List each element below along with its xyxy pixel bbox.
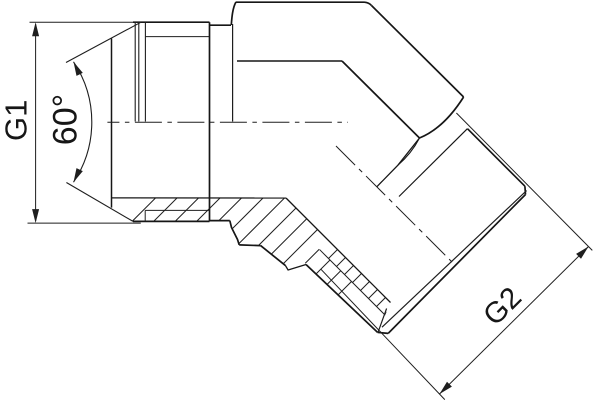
svg-text:60°: 60° (47, 94, 85, 145)
svg-text:G1: G1 (0, 100, 33, 141)
